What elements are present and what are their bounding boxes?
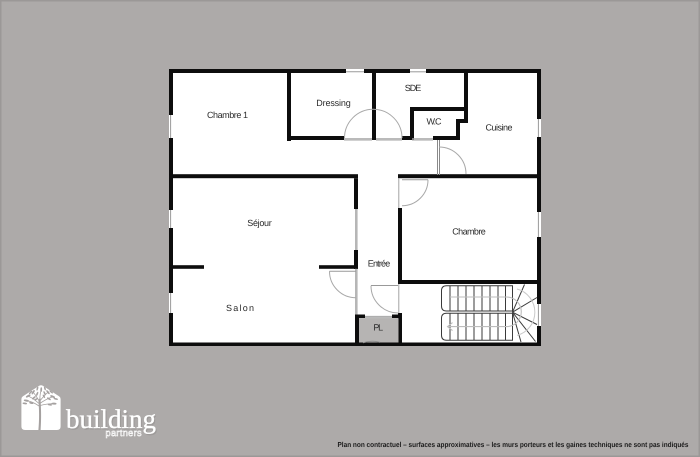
svg-text:Salon: Salon [226, 303, 254, 313]
svg-text:Chambre: Chambre [452, 226, 486, 236]
svg-text:Entrée: Entrée [368, 259, 391, 269]
svg-text:W.C: W.C [427, 117, 443, 127]
svg-text:SDE: SDE [405, 83, 422, 93]
svg-text:Dressing: Dressing [316, 98, 351, 108]
svg-text:PL: PL [373, 323, 383, 333]
svg-text:Chambre 1: Chambre 1 [207, 110, 248, 120]
svg-text:Cuisine: Cuisine [486, 123, 513, 133]
svg-text:partners: partners [106, 428, 143, 439]
svg-text:Séjour: Séjour [247, 218, 272, 228]
svg-text:Plan non contractuel – surface: Plan non contractuel – surfaces approxim… [338, 440, 689, 449]
